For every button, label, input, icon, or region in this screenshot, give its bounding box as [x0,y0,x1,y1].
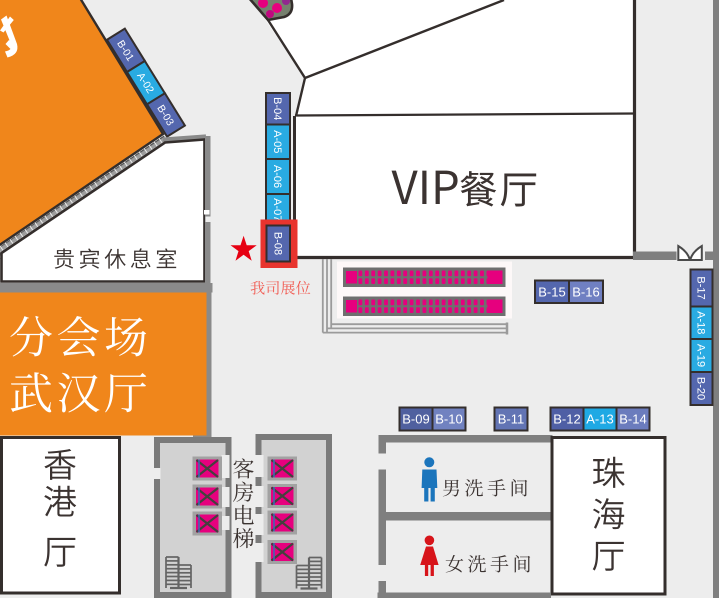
svg-text:A-13: A-13 [586,412,613,427]
svg-text:A-07: A-07 [271,198,283,221]
svg-text:A-06: A-06 [271,165,283,188]
svg-text:B-15: B-15 [538,284,565,299]
svg-text:A-19: A-19 [695,344,707,367]
svg-text:B-20: B-20 [695,377,707,400]
svg-text:B-04: B-04 [271,97,283,120]
svg-text:A-05: A-05 [271,130,283,153]
svg-text:B-08: B-08 [271,232,283,255]
svg-text:B-11: B-11 [498,412,525,427]
svg-text:B-12: B-12 [553,412,580,427]
svg-text:B-14: B-14 [619,412,646,427]
svg-text:B-10: B-10 [435,412,462,427]
svg-text:B-09: B-09 [402,412,429,427]
svg-text:A-18: A-18 [695,311,707,334]
svg-text:B-16: B-16 [572,284,599,299]
svg-text:B-17: B-17 [695,276,707,299]
